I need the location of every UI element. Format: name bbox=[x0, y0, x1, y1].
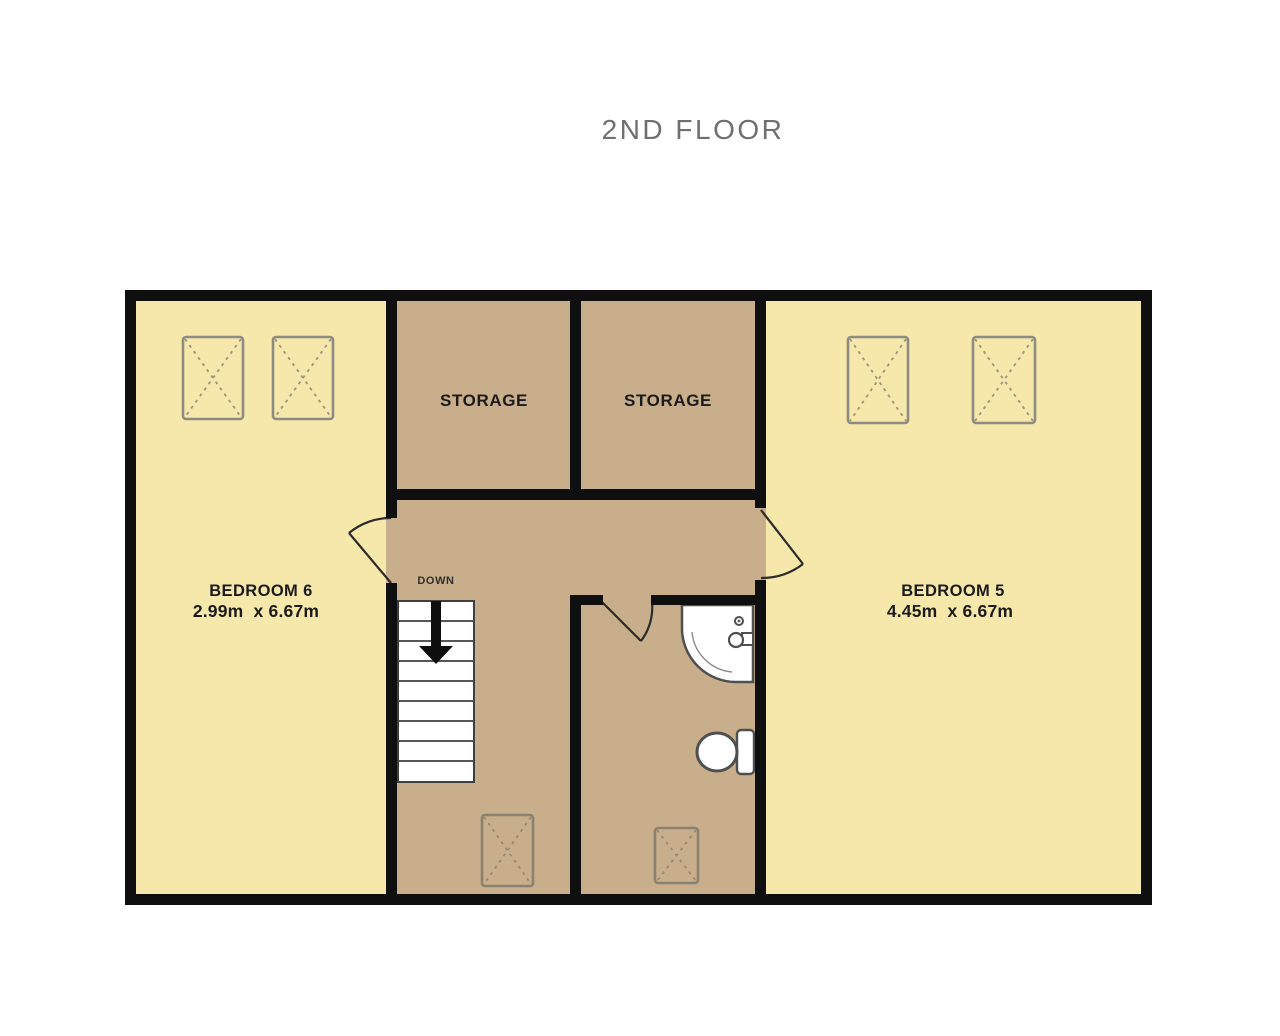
toilet-icon bbox=[697, 730, 754, 774]
storage-right-label: STORAGE bbox=[624, 391, 712, 410]
interior-wall bbox=[570, 595, 581, 898]
bedroom6-dimensions: 2.99m x 6.67m bbox=[193, 601, 319, 621]
interior-wall bbox=[570, 595, 603, 605]
staircase bbox=[398, 601, 474, 782]
outer-wall-bottom bbox=[125, 894, 1152, 905]
interior-wall bbox=[570, 297, 581, 495]
interior-wall bbox=[755, 297, 766, 508]
outer-wall-left bbox=[125, 290, 136, 905]
interior-wall bbox=[651, 595, 766, 605]
storage-left-label: STORAGE bbox=[440, 391, 528, 410]
bedroom5-label: BEDROOM 5 bbox=[901, 582, 1005, 600]
interior-wall bbox=[386, 489, 766, 500]
interior-wall bbox=[386, 297, 397, 518]
outer-wall-top bbox=[125, 290, 1152, 301]
stairs-down-label: DOWN bbox=[417, 575, 454, 587]
outer-wall-right bbox=[1141, 290, 1152, 905]
interior-wall bbox=[386, 583, 397, 898]
bedroom5-dimensions: 4.45m x 6.67m bbox=[887, 601, 1013, 621]
interior-wall bbox=[755, 580, 766, 898]
bedroom6-label: BEDROOM 6 bbox=[209, 582, 313, 600]
page-title: 2ND FLOOR bbox=[602, 114, 785, 145]
floor-plan-page: 2ND FLOOR bbox=[0, 0, 1280, 1036]
